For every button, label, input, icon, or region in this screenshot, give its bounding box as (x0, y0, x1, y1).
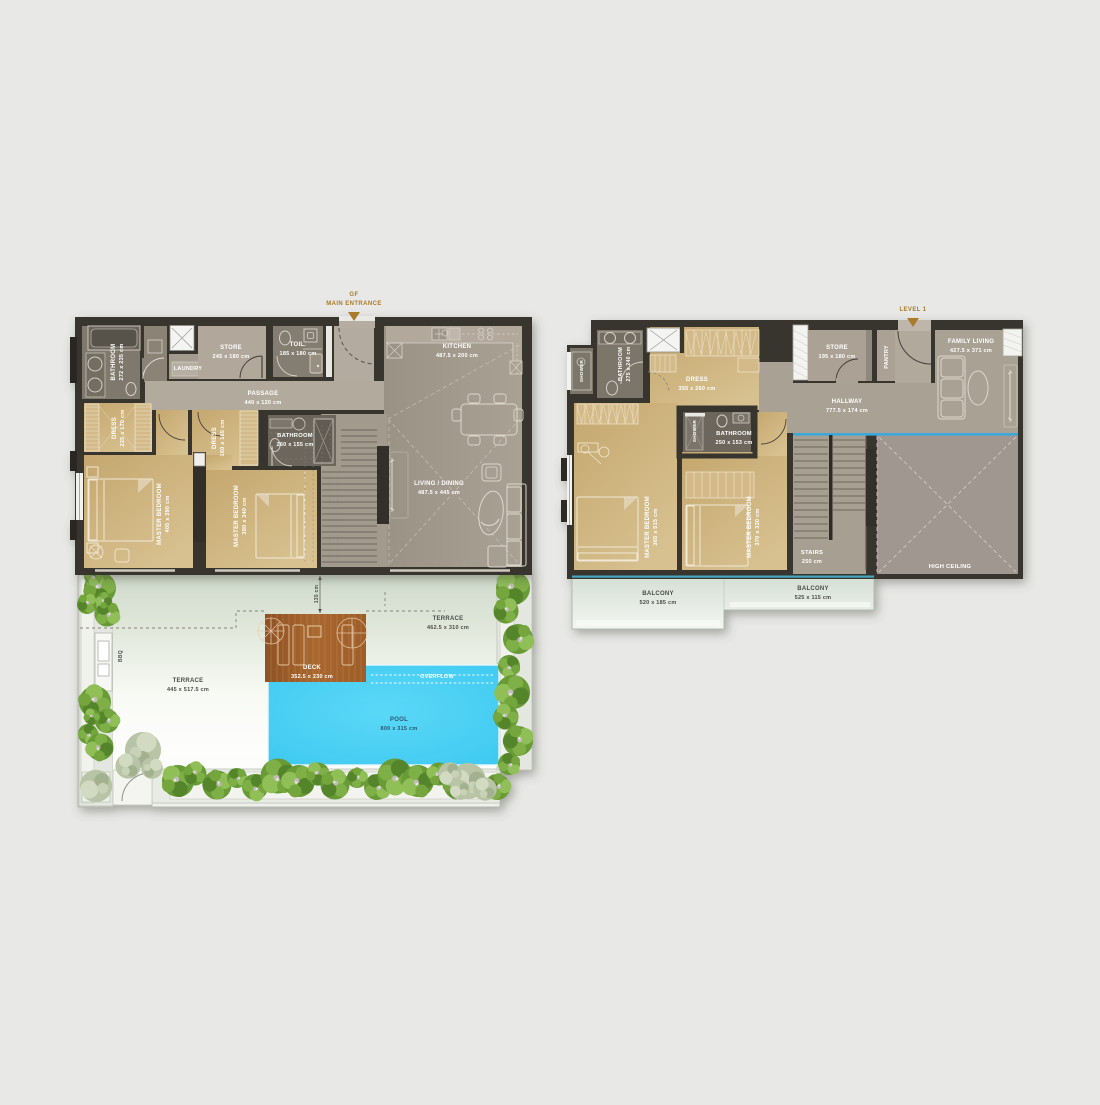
svg-text:LEVEL 1: LEVEL 1 (899, 307, 926, 313)
svg-text:405 x 390 cm: 405 x 390 cm (165, 496, 171, 533)
svg-text:BATHROOM: BATHROOM (111, 344, 117, 381)
svg-text:MASTER BEDROOM: MASTER BEDROOM (645, 496, 651, 558)
svg-text:260 x 155 cm: 260 x 155 cm (277, 442, 314, 448)
svg-text:TOIL.: TOIL. (290, 342, 307, 348)
svg-text:SHOWER: SHOWER (579, 359, 584, 382)
svg-text:HALLWAY: HALLWAY (832, 399, 863, 405)
svg-text:800 x 315 cm: 800 x 315 cm (381, 726, 418, 732)
svg-text:BATHROOM: BATHROOM (618, 347, 624, 381)
svg-text:380 x 340 cm: 380 x 340 cm (242, 498, 248, 535)
svg-text:DRESS: DRESS (686, 377, 708, 383)
svg-text:185 x 180 cm: 185 x 180 cm (280, 351, 317, 357)
svg-text:SHOWER: SHOWER (692, 419, 697, 442)
svg-text:525 x 115 cm: 525 x 115 cm (795, 595, 832, 601)
svg-text:365 x 515 cm: 365 x 515 cm (653, 509, 659, 546)
svg-text:352.5 x 230 cm: 352.5 x 230 cm (291, 674, 333, 680)
svg-text:PASSAGE: PASSAGE (248, 391, 279, 397)
svg-text:DECK: DECK (303, 665, 321, 671)
svg-text:GF: GF (349, 292, 358, 298)
svg-text:BBQ: BBQ (118, 650, 124, 662)
svg-text:487.5 x 445 cm: 487.5 x 445 cm (418, 490, 460, 496)
svg-text:462.5 x 310 cm: 462.5 x 310 cm (427, 625, 469, 631)
svg-text:LAUNDRY: LAUNDRY (174, 366, 203, 372)
svg-text:OVERFLOW: OVERFLOW (420, 674, 454, 680)
svg-text:272 x 235 cm: 272 x 235 cm (119, 344, 125, 381)
svg-text:245 x 180 cm: 245 x 180 cm (213, 354, 250, 360)
svg-text:370 x 330 cm: 370 x 330 cm (755, 509, 761, 546)
svg-text:DRESS: DRESS (112, 417, 118, 439)
svg-text:520 x 185 cm: 520 x 185 cm (640, 600, 677, 606)
svg-text:BATHROOM: BATHROOM (277, 433, 313, 439)
svg-text:MASTER BEDROOM: MASTER BEDROOM (157, 483, 163, 545)
svg-text:KITCHEN: KITCHEN (443, 344, 471, 350)
svg-text:TERRACE: TERRACE (173, 678, 204, 684)
svg-text:MASTER BEDROOM: MASTER BEDROOM (747, 496, 753, 558)
svg-text:MAIN ENTRANCE: MAIN ENTRANCE (326, 301, 382, 307)
svg-text:FAMILY LIVING: FAMILY LIVING (948, 339, 994, 345)
svg-text:STAIRS: STAIRS (801, 550, 823, 556)
svg-text:STORE: STORE (826, 345, 848, 351)
svg-text:BALCONY: BALCONY (642, 591, 673, 597)
svg-text:250 cm: 250 cm (802, 559, 822, 565)
svg-text:STORE: STORE (220, 345, 242, 351)
svg-text:440 x 120 cm: 440 x 120 cm (245, 400, 282, 406)
svg-text:HIGH CEILING: HIGH CEILING (929, 564, 972, 570)
svg-text:BATHROOM: BATHROOM (716, 431, 752, 437)
svg-text:PANTRY: PANTRY (884, 345, 890, 369)
svg-text:487.5 x 200 cm: 487.5 x 200 cm (436, 353, 478, 359)
svg-text:445 x 517.5 cm: 445 x 517.5 cm (167, 687, 209, 693)
svg-text:225 x 170 cm: 225 x 170 cm (120, 410, 126, 447)
svg-text:160 x 165 cm: 160 x 165 cm (220, 420, 226, 457)
svg-text:LIVING / DINING: LIVING / DINING (414, 481, 464, 487)
svg-text:TERRACE: TERRACE (433, 616, 464, 622)
svg-text:427.5 x 371 cm: 427.5 x 371 cm (950, 348, 992, 354)
svg-text:777.5 x 174 cm: 777.5 x 174 cm (826, 408, 868, 414)
svg-text:MASTER BEDROOM: MASTER BEDROOM (234, 485, 240, 547)
svg-text:250 x 153 cm: 250 x 153 cm (716, 440, 753, 446)
svg-text:135 cm: 135 cm (314, 584, 320, 603)
svg-text:355 x 260 cm: 355 x 260 cm (679, 386, 716, 392)
svg-text:BALCONY: BALCONY (797, 586, 828, 592)
svg-text:POOL: POOL (390, 717, 408, 723)
svg-text:DRESS: DRESS (212, 427, 218, 449)
svg-text:195 x 180 cm: 195 x 180 cm (819, 354, 856, 360)
svg-text:275 x 240 cm: 275 x 240 cm (626, 346, 632, 381)
